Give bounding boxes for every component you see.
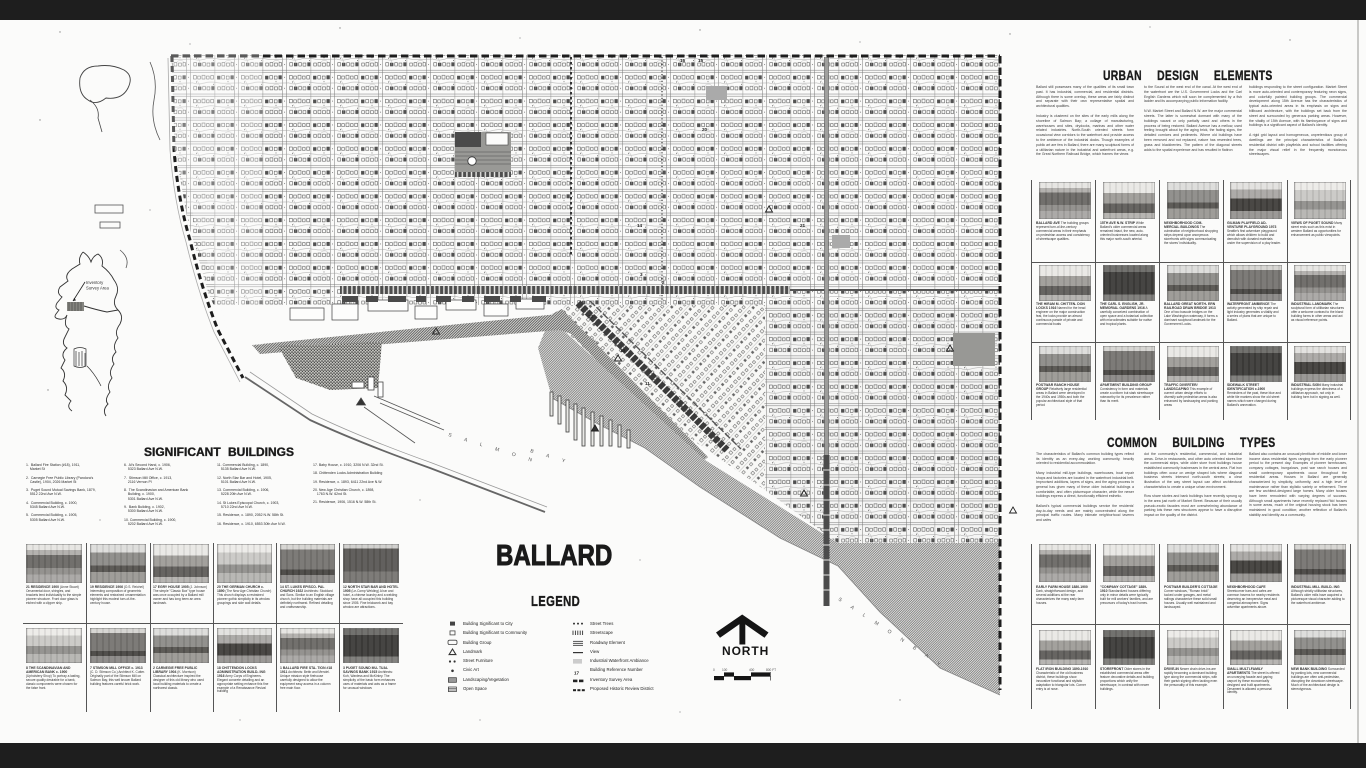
- svg-text:16: 16: [680, 58, 686, 63]
- svg-text:2: 2: [662, 280, 665, 285]
- svg-text:S A L M O N: S A L M O N: [447, 432, 538, 465]
- svg-text:15: 15: [698, 58, 704, 63]
- svg-text:10: 10: [620, 348, 626, 353]
- svg-text:NORTH: NORTH: [722, 644, 769, 658]
- svg-text:100: 100: [722, 668, 728, 672]
- svg-text:Inventory: Inventory: [86, 280, 104, 285]
- svg-text:20: 20: [702, 127, 708, 132]
- svg-text:0: 0: [713, 668, 715, 672]
- svg-text:14: 14: [637, 223, 643, 228]
- svg-text:400: 400: [749, 668, 755, 672]
- svg-text:13: 13: [588, 314, 594, 319]
- svg-text:800 FT: 800 FT: [766, 668, 776, 672]
- svg-text:3: 3: [640, 272, 643, 277]
- svg-text:11: 11: [645, 381, 650, 386]
- svg-text:21: 21: [800, 223, 806, 228]
- svg-text:17: 17: [574, 670, 580, 675]
- svg-text:Survey Area: Survey Area: [86, 286, 109, 291]
